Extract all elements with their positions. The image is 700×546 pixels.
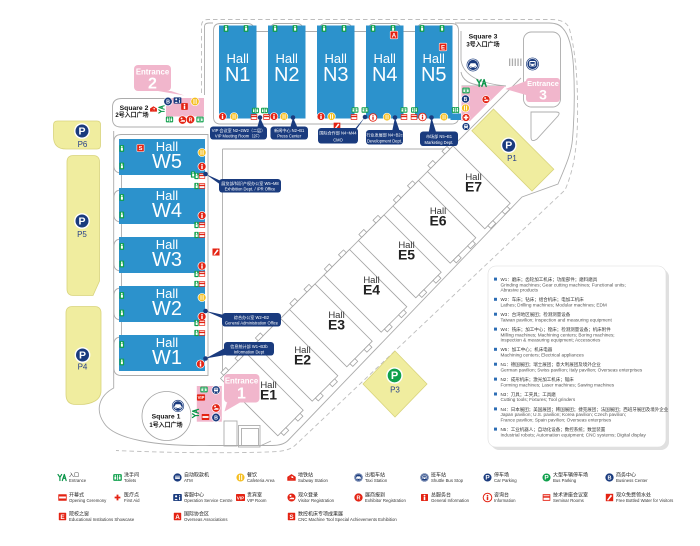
svg-text:1: 1	[237, 386, 246, 403]
svg-text:W2: W2	[152, 298, 182, 320]
svg-text:Entrance: Entrance	[225, 377, 259, 386]
svg-text:VIP Meeting Room（2F）: VIP Meeting Room（2F）	[215, 134, 262, 139]
svg-text:S: S	[289, 514, 294, 521]
svg-text:行业发展部 N4~B2c: 行业发展部 N4~B2c	[366, 131, 402, 137]
svg-text:P: P	[485, 475, 490, 482]
svg-text:E: E	[441, 44, 445, 51]
svg-text:W1: W1	[152, 347, 182, 369]
svg-text:Exhibition Dept. / IPR Office: Exhibition Dept. / IPR Office	[225, 187, 276, 192]
svg-text:Machining centers; Electrical: Machining centers; Electrical appliances	[501, 353, 585, 358]
svg-text:Taxi Station: Taxi Station	[365, 478, 388, 483]
svg-text:P: P	[78, 125, 85, 137]
svg-text:A: A	[175, 514, 180, 521]
svg-text:2号入口广场: 2号入口广场	[115, 111, 148, 119]
svg-text:Cutting tools; Fixtures; Tool: Cutting tools; Fixtures; Tool grinders	[501, 397, 576, 402]
svg-text:B: B	[166, 99, 170, 105]
svg-text:P1: P1	[507, 154, 517, 163]
svg-text:2: 2	[148, 76, 157, 93]
svg-text:Operation Service Centre: Operation Service Centre	[184, 498, 233, 503]
svg-text:P4: P4	[78, 363, 88, 372]
svg-text:P: P	[544, 475, 549, 482]
svg-text:E7: E7	[465, 179, 482, 195]
svg-text:Entrance: Entrance	[69, 478, 87, 483]
svg-text:E3: E3	[328, 317, 345, 333]
svg-text:General Information: General Information	[431, 498, 470, 503]
svg-text:W5: W5	[152, 151, 182, 173]
svg-text:Cafeteria Area: Cafeteria Area	[247, 478, 275, 483]
svg-text:N1: N1	[225, 64, 251, 86]
svg-text:Toilets: Toilets	[124, 478, 136, 483]
svg-text:W4: W4	[152, 200, 182, 222]
svg-text:Information Dept: Information Dept	[234, 350, 265, 355]
svg-text:General Administration Office: General Administration Office	[225, 321, 279, 326]
svg-text:Visitor Registration: Visitor Registration	[298, 498, 335, 503]
svg-text:P: P	[79, 349, 86, 361]
svg-text:市场部 N5~B1: 市场部 N5~B1	[426, 133, 453, 139]
svg-text:VIP: VIP	[198, 395, 205, 400]
svg-text:E5: E5	[398, 247, 415, 263]
svg-text:First Aid: First Aid	[124, 498, 140, 503]
svg-text:Marketing Dept.: Marketing Dept.	[425, 140, 454, 145]
svg-text:VIP: VIP	[237, 495, 244, 500]
svg-text:Grinding machines; Gear cuttin: Grinding machines; Gear cutting machines…	[501, 282, 626, 287]
svg-text:P: P	[505, 140, 512, 152]
svg-text:Milling machines; Machining ce: Milling machines; Machining centers; Bor…	[501, 332, 615, 337]
svg-text:German pavilion; Swiss pavilio: German pavilion; Swiss pavilion; Italy p…	[501, 367, 643, 372]
svg-text:Seminar Rooms: Seminar Rooms	[553, 498, 584, 503]
svg-text:N3: N3	[323, 64, 349, 86]
svg-text:B: B	[607, 476, 611, 482]
svg-text:CNC Machine Tool Special Achie: CNC Machine Tool Special Achievements Ex…	[298, 517, 397, 522]
svg-text:信息统计部 W1~B3b: 信息统计部 W1~B3b	[230, 343, 268, 349]
svg-text:Japan pavilion; U.S. pavilion;: Japan pavilion; U.S. pavilion; Korea pav…	[501, 412, 627, 417]
svg-text:N4: N4	[372, 64, 398, 86]
svg-text:国际合作部 N4~M44: 国际合作部 N4~M44	[319, 130, 357, 136]
svg-text:S: S	[139, 146, 143, 152]
svg-text:Exhibitor Registration: Exhibitor Registration	[365, 498, 406, 503]
svg-text:B: B	[214, 415, 218, 421]
svg-text:Square 3: Square 3	[469, 34, 498, 41]
svg-text:Development Dept.: Development Dept.	[367, 138, 402, 143]
svg-text:Press Center: Press Center	[277, 134, 302, 139]
svg-text:Car Parking: Car Parking	[494, 478, 517, 483]
svg-text:Abrasive products: Abrasive products	[501, 288, 539, 293]
svg-text:N2: N2	[274, 64, 300, 86]
svg-text:Forming machines; Laser machin: Forming machines; Laser machines; Sawing…	[501, 382, 615, 387]
svg-text:R: R	[356, 496, 360, 502]
svg-text:Information: Information	[494, 498, 516, 503]
svg-text:Business Center: Business Center	[616, 478, 648, 483]
svg-text:CMO: CMO	[333, 137, 343, 142]
svg-text:Taiwan pavilion; Inspection an: Taiwan pavilion; Inspection and measurin…	[501, 317, 613, 322]
svg-text:新闻中心 N2~B1: 新闻中心 N2~B1	[274, 127, 305, 133]
svg-text:P: P	[391, 370, 398, 382]
svg-text:E2: E2	[294, 352, 311, 368]
svg-text:P3: P3	[390, 386, 400, 395]
svg-text:1号入口广场: 1号入口广场	[149, 421, 182, 429]
svg-text:Lathes; Drilling machines; Mod: Lathes; Drilling machines; Modular machi…	[501, 303, 607, 308]
svg-text:E6: E6	[429, 213, 446, 229]
svg-text:Shuttle Bus Stop: Shuttle Bus Stop	[431, 478, 464, 483]
svg-text:Overseas Associations: Overseas Associations	[184, 517, 227, 522]
svg-text:Square 1: Square 1	[152, 414, 181, 421]
svg-text:Free Bottled Water for Visitor: Free Bottled Water for Visitors	[616, 498, 673, 503]
svg-text:E: E	[60, 514, 65, 521]
svg-text:3号入口广场: 3号入口广场	[466, 41, 499, 49]
svg-text:A: A	[392, 32, 397, 39]
svg-text:Square 2: Square 2	[120, 105, 149, 112]
svg-text:R: R	[189, 117, 193, 123]
svg-text:Bus Parking: Bus Parking	[553, 478, 577, 483]
svg-text:W3: W3	[152, 249, 182, 271]
svg-text:E1: E1	[260, 387, 277, 403]
svg-text:VIP Room: VIP Room	[247, 498, 267, 503]
svg-text:Industrial robots; Automation: Industrial robots; Automation equipment;…	[501, 432, 647, 437]
svg-text:3: 3	[539, 87, 547, 103]
svg-text:Inspection & measuring equipme: Inspection & measuring equipment; Access…	[501, 338, 601, 343]
svg-text:France pavilion; Spain pavilio: France pavilion; Spain pavilion; Oversea…	[501, 417, 612, 422]
svg-text:综合办公室 W2~B2: 综合办公室 W2~B2	[234, 314, 270, 320]
svg-text:N5: N5	[421, 64, 447, 86]
svg-text:P: P	[78, 215, 85, 227]
svg-text:ATM: ATM	[184, 478, 193, 483]
svg-text:VIP 会议室 N2~2W2（二层）: VIP 会议室 N2~2W2（二层）	[212, 127, 266, 133]
svg-text:Educational Institutions Showc: Educational Institutions Showcase	[69, 517, 135, 522]
svg-text:展览部/知识产权办公室 W5~M8: 展览部/知识产权办公室 W5~M8	[221, 180, 279, 186]
svg-text:E4: E4	[363, 282, 380, 298]
svg-text:Subway Station: Subway Station	[298, 478, 328, 483]
svg-text:Opening Ceremony: Opening Ceremony	[69, 498, 107, 503]
svg-text:P6: P6	[78, 140, 88, 149]
svg-text:B: B	[464, 97, 468, 103]
svg-text:P5: P5	[77, 230, 87, 239]
